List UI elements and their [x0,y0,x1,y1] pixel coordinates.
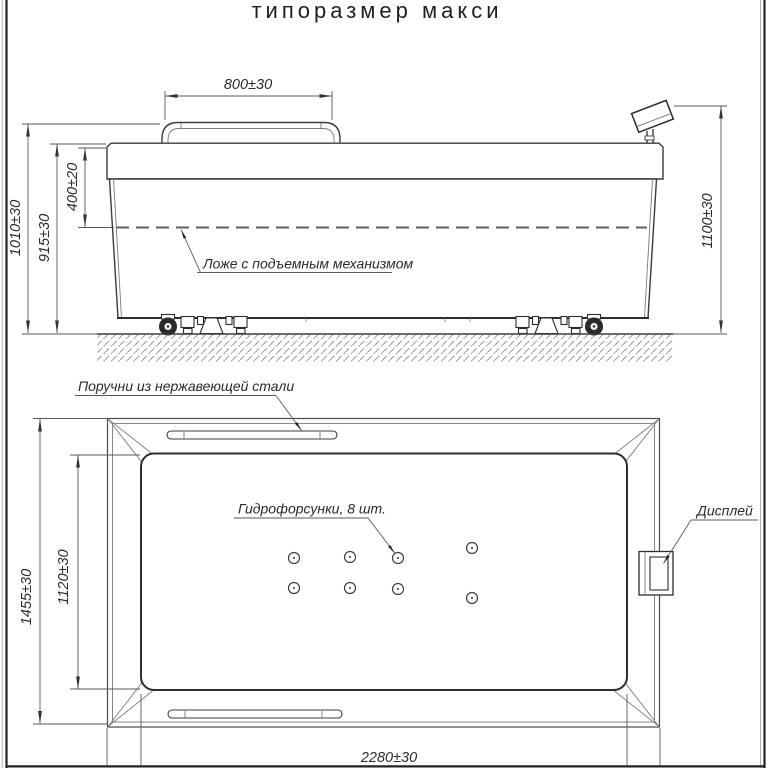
svg-text:2280±30: 2280±30 [360,750,417,766]
svg-text:800±30: 800±30 [224,77,272,93]
svg-text:1455±30: 1455±30 [19,569,35,625]
svg-text:1120±30: 1120±30 [56,549,72,604]
dim-handrail-width: 800±30 [165,77,332,120]
bathtub-side-view [107,143,663,322]
svg-text:Поручни из нержавеющей стали: Поручни из нержавеющей стали [78,378,294,394]
dim-plan-overall-length: 2280±30 [107,694,660,766]
handrail-plan-bottom [168,710,342,718]
svg-text:1010±30: 1010±30 [8,200,24,256]
page-title: типоразмер макси [251,0,502,23]
label-display: Дисплей [664,503,759,564]
display-side [632,100,674,148]
tub-rim-side [107,143,663,179]
display-plan [639,552,673,596]
svg-text:Ложе с подъемным механизмом: Ложе с подъемным механизмом [202,256,414,272]
svg-text:Гидрофорсунки, 8 шт.: Гидрофорсунки, 8 шт. [238,501,386,517]
svg-text:400±20: 400±20 [65,163,81,211]
handrail-side [162,123,340,144]
handrail-plan-top [167,431,337,439]
svg-text:Дисплей: Дисплей [695,503,753,519]
svg-text:1100±30: 1100±30 [700,193,716,248]
technical-drawing: типоразмер макси [0,0,768,768]
ground-hatch [97,334,673,363]
feet-left-group [160,315,248,336]
dim-plan-basin-width: 1120±30 [56,455,140,689]
tub-basin [141,454,627,691]
elevation-view: 800±30 1010±30 915±30 400±20 1100±3 [8,77,727,363]
svg-text:915±30: 915±30 [37,214,53,262]
plan-view: 1455±30 1120±30 2280±30 Поручни из нержа… [19,378,758,766]
label-handrails: Поручни из нержавеющей стали [75,378,302,431]
tub-body-side [110,179,657,318]
dim-display-height: 1100±30 [673,106,727,334]
